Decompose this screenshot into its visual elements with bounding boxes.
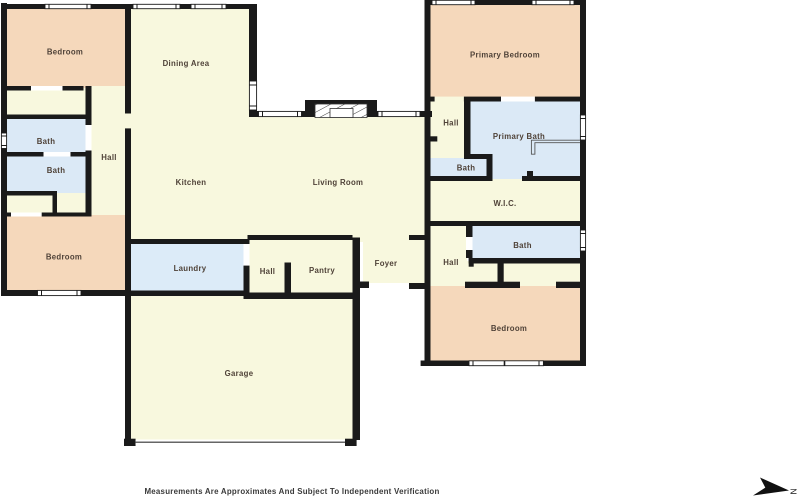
svg-text:Hall: Hall xyxy=(260,267,276,276)
svg-text:Bedroom: Bedroom xyxy=(47,48,83,57)
svg-text:Primary Bedroom: Primary Bedroom xyxy=(470,51,540,60)
svg-text:Primary Bath: Primary Bath xyxy=(493,132,545,141)
svg-text:Bath: Bath xyxy=(457,164,476,173)
svg-text:Living Room: Living Room xyxy=(313,178,364,187)
svg-text:Bath: Bath xyxy=(47,166,66,175)
svg-text:Hall: Hall xyxy=(443,119,459,128)
svg-text:Dining Area: Dining Area xyxy=(163,59,210,68)
svg-text:Kitchen: Kitchen xyxy=(176,178,207,187)
svg-text:Hall: Hall xyxy=(443,258,459,267)
svg-text:Pantry: Pantry xyxy=(309,266,335,275)
svg-text:Hall: Hall xyxy=(101,153,117,162)
svg-text:Garage: Garage xyxy=(225,369,254,378)
svg-text:Laundry: Laundry xyxy=(174,264,207,273)
svg-text:Bath: Bath xyxy=(513,241,532,250)
svg-text:Bath: Bath xyxy=(37,137,56,146)
svg-text:Measurements Are Approximates: Measurements Are Approximates And Subjec… xyxy=(144,487,439,496)
svg-text:N: N xyxy=(789,488,799,494)
svg-text:Foyer: Foyer xyxy=(375,259,398,268)
svg-text:Bedroom: Bedroom xyxy=(491,324,527,333)
svg-text:Bedroom: Bedroom xyxy=(46,253,82,262)
svg-text:W.I.C.: W.I.C. xyxy=(493,199,516,208)
